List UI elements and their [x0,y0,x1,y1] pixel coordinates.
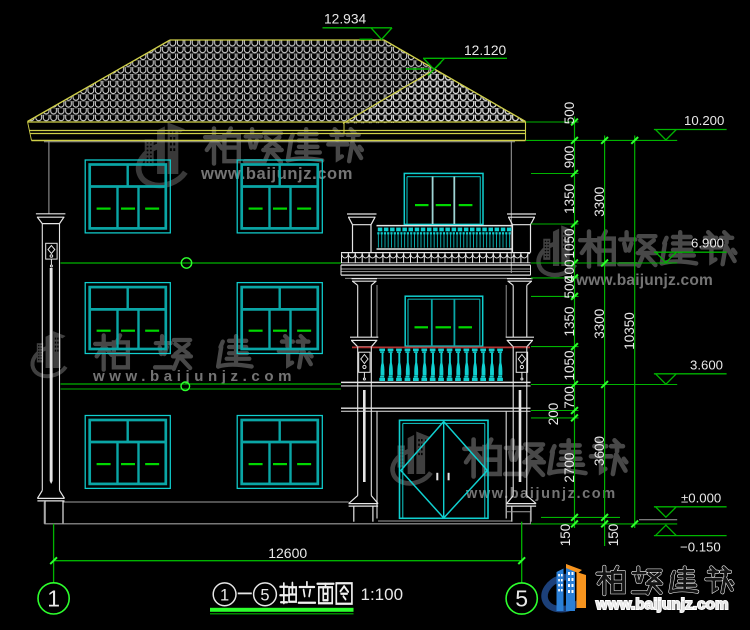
svg-text:1050: 1050 [562,350,577,380]
svg-text:12600: 12600 [268,545,307,561]
svg-text:10.200: 10.200 [684,113,724,128]
svg-text:700: 700 [562,386,577,409]
svg-text:2700: 2700 [562,453,577,483]
svg-text:150: 150 [558,524,573,547]
svg-text:6.900: 6.900 [691,236,724,251]
svg-text:3300: 3300 [592,309,607,339]
svg-text:12.934: 12.934 [324,12,367,27]
svg-text:10350: 10350 [622,312,637,350]
svg-text:900: 900 [562,146,577,169]
svg-text:1350: 1350 [562,184,577,214]
svg-text:500: 500 [562,276,577,299]
svg-text:3300: 3300 [592,187,607,217]
svg-text:www.baijunjz.com: www.baijunjz.com [575,272,713,289]
svg-text:200: 200 [546,403,561,426]
svg-text:www.baijunjz.com: www.baijunjz.com [595,596,729,613]
svg-text:1350: 1350 [562,306,577,336]
svg-text:3600: 3600 [592,436,607,466]
svg-text:1: 1 [47,586,60,612]
svg-text:1: 1 [220,586,229,604]
svg-text:−0.150: −0.150 [680,540,721,555]
svg-text:1050: 1050 [562,228,577,258]
svg-text:150: 150 [606,524,621,547]
svg-text:±0.000: ±0.000 [681,490,721,505]
svg-text:12.120: 12.120 [464,43,507,58]
svg-text:5: 5 [260,586,269,604]
svg-text:3.600: 3.600 [690,357,723,372]
svg-text:1:100: 1:100 [361,585,404,604]
svg-text:500: 500 [562,102,577,125]
svg-text:www.baijunjz.com: www.baijunjz.com [200,165,353,183]
svg-text:www.baijunjz.com: www.baijunjz.com [92,368,296,385]
svg-text:5: 5 [515,586,528,612]
